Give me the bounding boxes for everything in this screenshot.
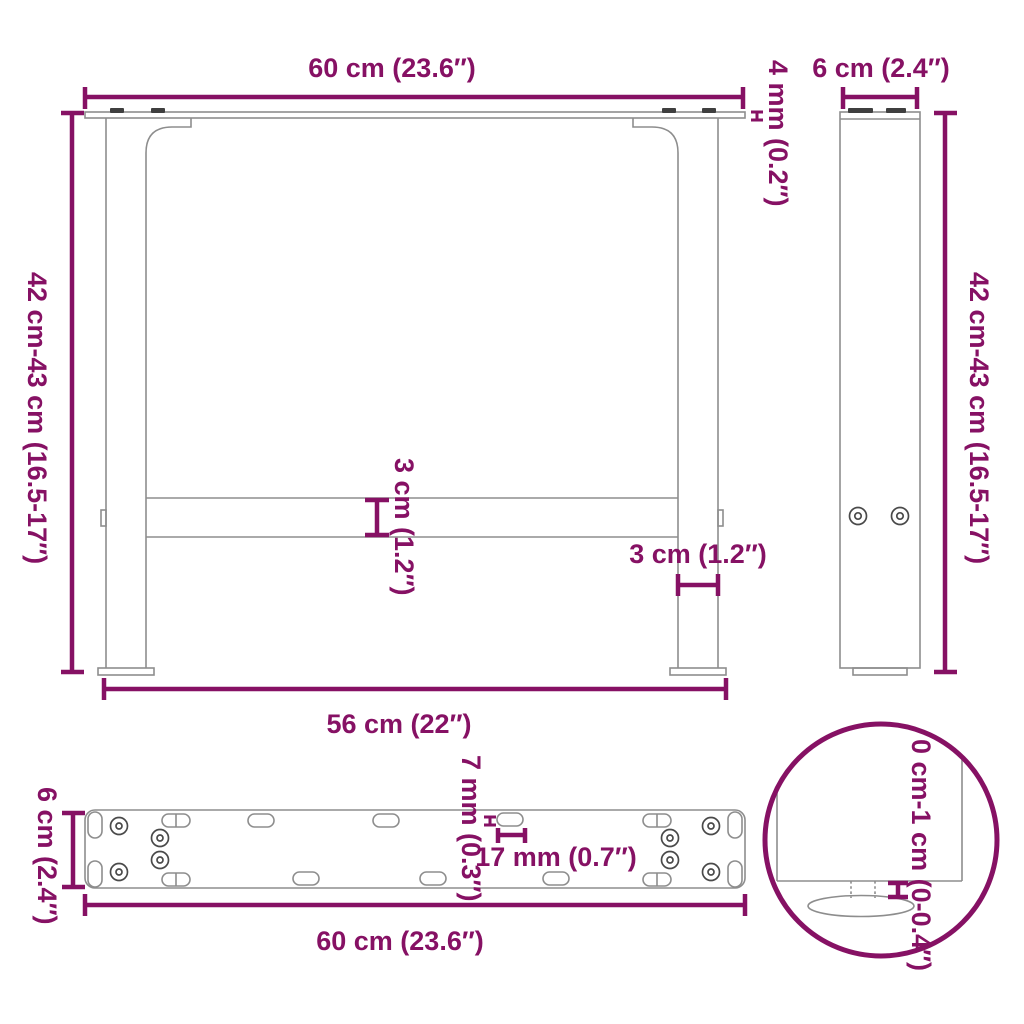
dimension-lines: [61, 87, 957, 916]
dim-front-crossbar: [365, 500, 389, 535]
label-detail-adjust: 0 cm-1 cm (0-0.4″): [907, 739, 935, 971]
label-front-height: 42 cm-43 cm (16.5-17″): [23, 272, 51, 564]
label-front-bottom-width: 56 cm (22″): [326, 710, 471, 738]
dim-front-bottom-width: [104, 678, 726, 700]
dim-top-slot-length: [498, 828, 525, 843]
label-front-leg-width: 3 cm (1.2″): [629, 540, 767, 568]
side-view-drawing: [840, 112, 920, 675]
label-top-depth: 6 cm (2.4″): [33, 787, 61, 925]
dim-front-height: [61, 111, 84, 674]
label-side-width: 6 cm (2.4″): [812, 54, 950, 82]
dim-detail-adjust: [888, 883, 908, 897]
label-top-length: 60 cm (23.6″): [316, 927, 484, 955]
diagram-canvas: 60 cm (23.6″) 4 mm (0.2″) 42 cm-43 cm (1…: [0, 0, 1024, 1024]
dim-side-height: [934, 111, 957, 674]
label-front-top-width: 60 cm (23.6″): [308, 54, 476, 82]
dim-front-top-width: [85, 87, 743, 109]
dim-top-length: [85, 894, 745, 916]
label-front-plate-thickness: 4 mm (0.2″): [764, 60, 792, 206]
label-side-height: 42 cm-43 cm (16.5-17″): [965, 272, 993, 564]
top-view-plate-drawing: [85, 810, 745, 888]
side-view-screw-holes: [850, 508, 909, 525]
label-top-slot-width: 7 mm (0.3″): [457, 755, 485, 901]
dim-side-width: [843, 87, 917, 109]
dim-front-plate-thickness: [751, 112, 763, 120]
dim-front-leg-width: [678, 574, 718, 596]
label-front-crossbar: 3 cm (1.2″): [390, 458, 418, 596]
label-top-slot-length: 17 mm (0.7″): [475, 843, 637, 871]
dim-top-depth: [62, 812, 85, 888]
